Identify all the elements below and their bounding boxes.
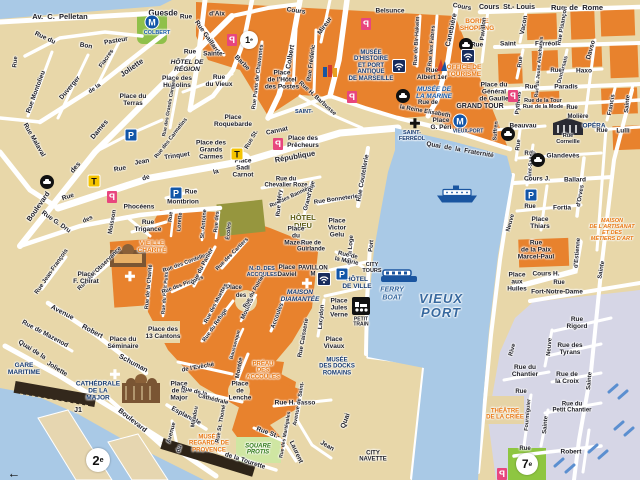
poi-flag-icon: P [227, 34, 237, 46]
parking-icon: P [525, 189, 538, 202]
church-cross-icon: ✚ [110, 367, 121, 383]
church-cross-icon: ✚ [410, 116, 421, 132]
museum-logo [323, 65, 337, 77]
taxi-icon [40, 175, 54, 189]
opera-building [553, 118, 583, 135]
taxi-icon [531, 153, 545, 167]
vieille-charite-block [110, 238, 164, 307]
wifi-icon [461, 49, 475, 63]
taxi-icon [396, 89, 410, 103]
petit-train-icon [352, 297, 370, 315]
church-cross-icon: ✚ [125, 269, 136, 285]
poi-flag-icon: P [361, 18, 371, 30]
parking-icon: P [170, 187, 183, 200]
tram-stop-icon: T [88, 175, 101, 188]
cathedral-major-building [122, 374, 160, 403]
poi-flag-icon: P [497, 468, 507, 480]
wifi-icon [317, 272, 331, 286]
parking-icon: P [125, 129, 138, 142]
ferry-boat-icon [381, 268, 419, 284]
theatre-block [484, 396, 524, 424]
parking-icon: P [336, 268, 349, 281]
tourism-office-logo [436, 58, 448, 72]
arrondissement-badge: 2e [86, 448, 110, 472]
taxi-icon [501, 127, 515, 141]
poi-flag-icon: P [107, 191, 117, 203]
direction-arrow-icon: ← [8, 466, 21, 480]
arrondissement-badge: 1e [240, 31, 258, 49]
hotel-dieu-block [216, 200, 265, 237]
metro-icon: M [453, 114, 468, 129]
church-cross-icon: ✚ [302, 276, 313, 292]
poi-flag-icon: P [273, 138, 283, 150]
wifi-icon [392, 59, 406, 73]
map-geometry [0, 0, 640, 480]
metro-icon: M [145, 15, 160, 30]
poi-flag-icon: P [347, 91, 357, 103]
poi-flag-icon: P [508, 90, 518, 102]
le-panier-block [142, 210, 318, 408]
city-map-marseille-vieux-port[interactable]: GuesdeAv. C. PelletanRue duBonPasteurRue… [0, 0, 640, 480]
arrondissement-badge: 7e [516, 453, 538, 475]
tram-stop-icon: T [231, 148, 244, 161]
cruise-ship-icon [435, 185, 479, 204]
